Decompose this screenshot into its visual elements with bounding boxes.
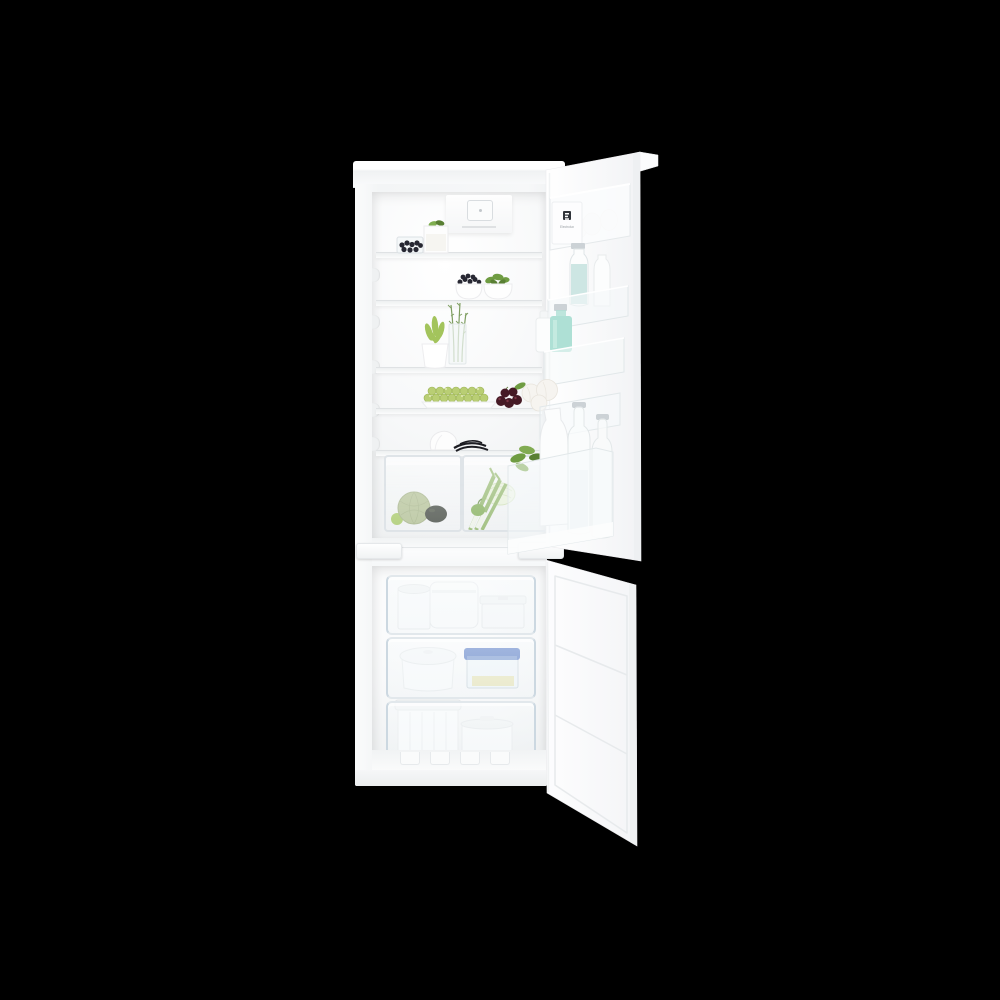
- built-in-fridge-freezer: Electrolux: [0, 0, 1000, 1000]
- electrolux-logo-text: Electrolux: [560, 225, 574, 229]
- divider-handle-left: [356, 543, 402, 559]
- bottle-rack: [508, 448, 613, 554]
- freezer-door-gasket-line: [548, 562, 549, 792]
- drawer-rail-foot: [430, 752, 450, 765]
- bowl-of-blueberries: [456, 274, 482, 299]
- freezer-door-side-edge: [629, 583, 637, 846]
- potted-plant: [422, 316, 448, 368]
- grapes-plate: [422, 387, 496, 408]
- drawer-rail-foot: [460, 752, 480, 765]
- fridge-door-open: Electrolux: [500, 140, 670, 585]
- yogurt-glass: [424, 219, 448, 253]
- photo-canvas: Electrolux: [0, 0, 1000, 1000]
- vanilla-pods: [454, 441, 488, 451]
- blueberries-box: [397, 237, 423, 253]
- rosemary-glass: [448, 303, 468, 364]
- freezer-door-inner-face: [546, 560, 637, 846]
- door-side-edge: [633, 152, 641, 561]
- linen-bag: [430, 431, 457, 450]
- crisper-drawer-left: [384, 455, 462, 532]
- brand-badge: Electrolux: [552, 202, 582, 244]
- drawer-rail-foot: [400, 752, 420, 765]
- freezer-door-open: [500, 545, 670, 860]
